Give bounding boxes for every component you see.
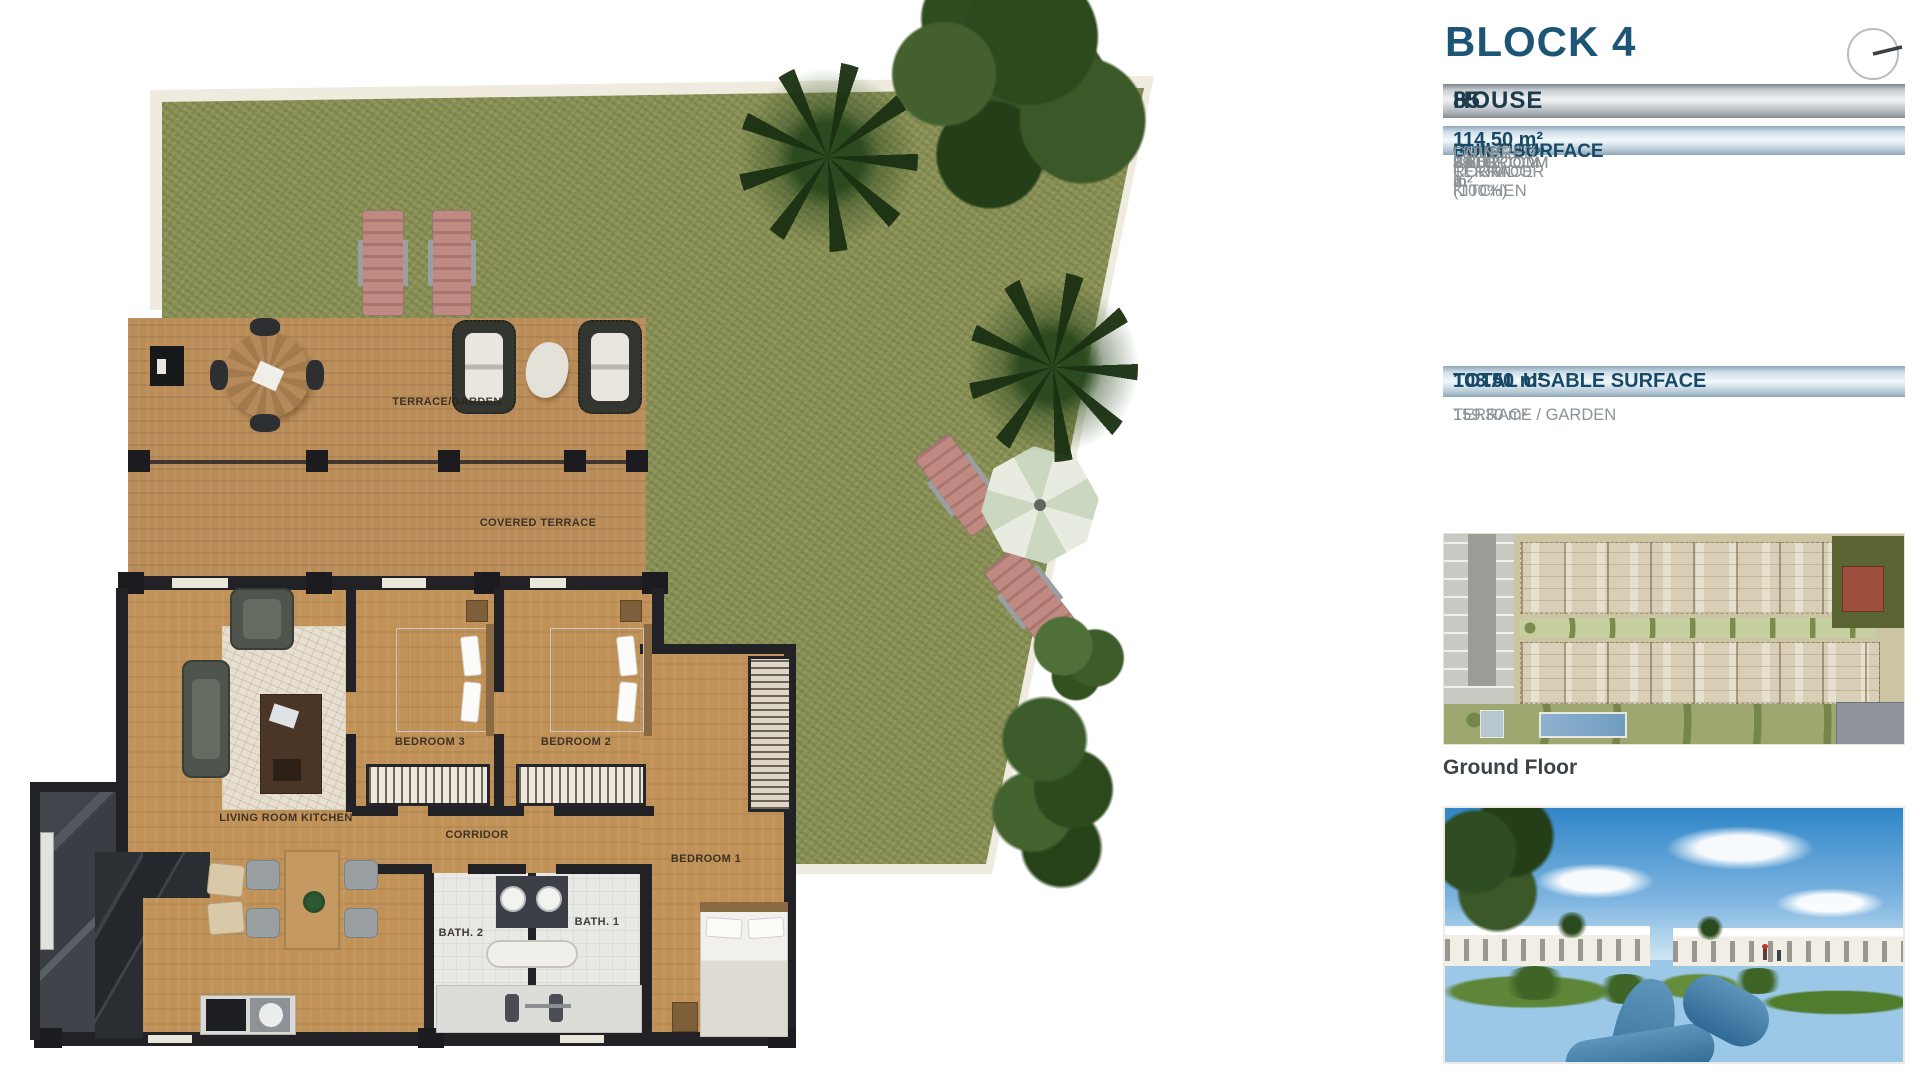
wall: [556, 864, 652, 874]
bar-chair: [206, 862, 245, 898]
laptop: [269, 703, 299, 728]
living-sofa: [182, 660, 230, 778]
wall: [116, 588, 128, 868]
siteplan-units-row: [1520, 542, 1834, 614]
wall: [346, 734, 356, 812]
block-title: BLOCK 4: [1445, 18, 1636, 66]
pillar: [626, 450, 648, 472]
siteplan-pool: [1539, 712, 1627, 738]
wall: [468, 864, 526, 874]
pillar: [564, 450, 586, 472]
siteplan-building: [1836, 702, 1905, 745]
palm-tree: [738, 62, 918, 252]
sink: [536, 886, 562, 912]
headboard: [700, 902, 788, 912]
coffee-table: [260, 694, 322, 794]
photo-palm: [1695, 916, 1725, 940]
window: [148, 1035, 192, 1043]
kitchen-counter: [95, 852, 143, 1038]
siteplan-caption: Ground Floor: [1443, 756, 1577, 780]
wall: [352, 806, 398, 816]
dining-chair: [246, 908, 280, 938]
wall: [640, 644, 796, 654]
pillar: [128, 450, 150, 472]
sink: [500, 886, 526, 912]
siteplan-road: [1520, 618, 1876, 638]
dining-table: [284, 850, 340, 950]
label-bath1: BATH. 1: [575, 916, 620, 928]
pillar: [306, 450, 328, 472]
wall: [30, 782, 126, 792]
pillar: [438, 450, 460, 472]
headboard: [644, 624, 652, 736]
living-armchair: [230, 588, 294, 650]
terrace-garden-row: TERRACE / GARDEN 159.30 m²: [1443, 402, 1905, 428]
plant: [303, 891, 325, 913]
pillow: [460, 681, 481, 722]
surface-row: COVERED TERRACE (100%) 31.00 m²: [1443, 160, 1461, 186]
terrace-sofa: [578, 320, 642, 414]
siteplan-highlighted-garden: [1832, 536, 1905, 628]
pillow: [705, 917, 742, 939]
headboard: [486, 624, 494, 736]
window: [560, 1035, 604, 1043]
photo-bush: [1500, 966, 1570, 1000]
dining-chair: [246, 860, 280, 890]
kitchen-appliances: [200, 995, 296, 1035]
wardrobe: [516, 764, 646, 806]
bar-chair: [207, 900, 246, 935]
brochure-page: TERRACE/GARDEN COVERED TERRACE LIVING RO…: [0, 0, 1920, 1080]
floorplan-illustration: TERRACE/GARDEN COVERED TERRACE LIVING RO…: [0, 0, 1160, 1080]
house-number: 85: [1453, 87, 1480, 115]
terrace-round-table: [224, 332, 310, 418]
entrance-door: [40, 832, 54, 950]
wall: [30, 782, 40, 1040]
dining-chair: [344, 860, 378, 890]
house-row: HOUSE 85: [1443, 84, 1905, 118]
wardrobe: [366, 764, 490, 806]
label-bedroom2: BEDROOM 2: [541, 736, 611, 748]
total-usable-row: TOTAL USABLE SURFACE 103.50 m²: [1443, 366, 1905, 397]
terrace-chair: [210, 360, 228, 390]
shower: [436, 985, 642, 1033]
label-covered-terrace: COVERED TERRACE: [480, 517, 597, 529]
siteplan-image: [1443, 533, 1905, 745]
bathtub: [486, 940, 578, 968]
label-bath2: BATH. 2: [439, 927, 484, 939]
sun-lounger: [362, 210, 404, 316]
terrace-chair: [250, 318, 280, 336]
nightstand: [672, 1002, 698, 1032]
cloud: [1775, 888, 1885, 918]
wall: [494, 588, 504, 692]
terrace-chair: [250, 414, 280, 432]
info-panel: BLOCK 4 HOUSE 85 BUILT SURFACE (Terrace …: [1443, 18, 1905, 1068]
label-terrace-garden: TERRACE/GARDEN: [392, 396, 502, 408]
label-bedroom3: BEDROOM 3: [395, 736, 465, 748]
photo-golfer: [1763, 948, 1767, 960]
dining-chair: [344, 908, 378, 938]
photo-tree: [1443, 806, 1565, 948]
louvered-closet: [748, 656, 792, 812]
tree: [968, 672, 1138, 897]
label-bedroom1: BEDROOM 1: [671, 853, 741, 865]
label-living: LIVING ROOM KITCHEN: [219, 812, 353, 824]
nightstand: [466, 600, 488, 622]
total-value: 103.50 m²: [1453, 370, 1544, 393]
wall: [424, 873, 434, 1035]
pillar: [306, 572, 332, 594]
room-value: 31.00 m²: [1453, 154, 1495, 192]
development-photo: [1443, 806, 1905, 1064]
siteplan-units-row: [1520, 642, 1880, 704]
terrace-garden-value: 159.30 m²: [1453, 406, 1527, 425]
cloud: [1665, 826, 1815, 870]
sun-lounger: [432, 210, 472, 316]
bbq-unit: [150, 346, 184, 386]
window: [382, 578, 426, 588]
window: [172, 578, 228, 588]
pillow: [616, 681, 637, 722]
palm-tree: [968, 272, 1138, 462]
compass-icon: [1845, 24, 1903, 82]
sink: [259, 1003, 283, 1027]
stove: [206, 999, 246, 1031]
wall: [494, 734, 504, 812]
wall: [428, 806, 524, 816]
pillow: [747, 917, 784, 939]
wall: [554, 806, 654, 816]
siteplan-kids-pool: [1480, 710, 1504, 738]
terrace-chair: [306, 360, 324, 390]
window: [530, 578, 566, 588]
siteplan-highlighted-unit: [1842, 566, 1884, 612]
wall: [346, 588, 356, 692]
label-corridor: CORRIDOR: [445, 829, 508, 841]
siteplan-parking: [1444, 534, 1514, 724]
nightstand: [620, 600, 642, 622]
photo-golfer: [1777, 950, 1781, 961]
